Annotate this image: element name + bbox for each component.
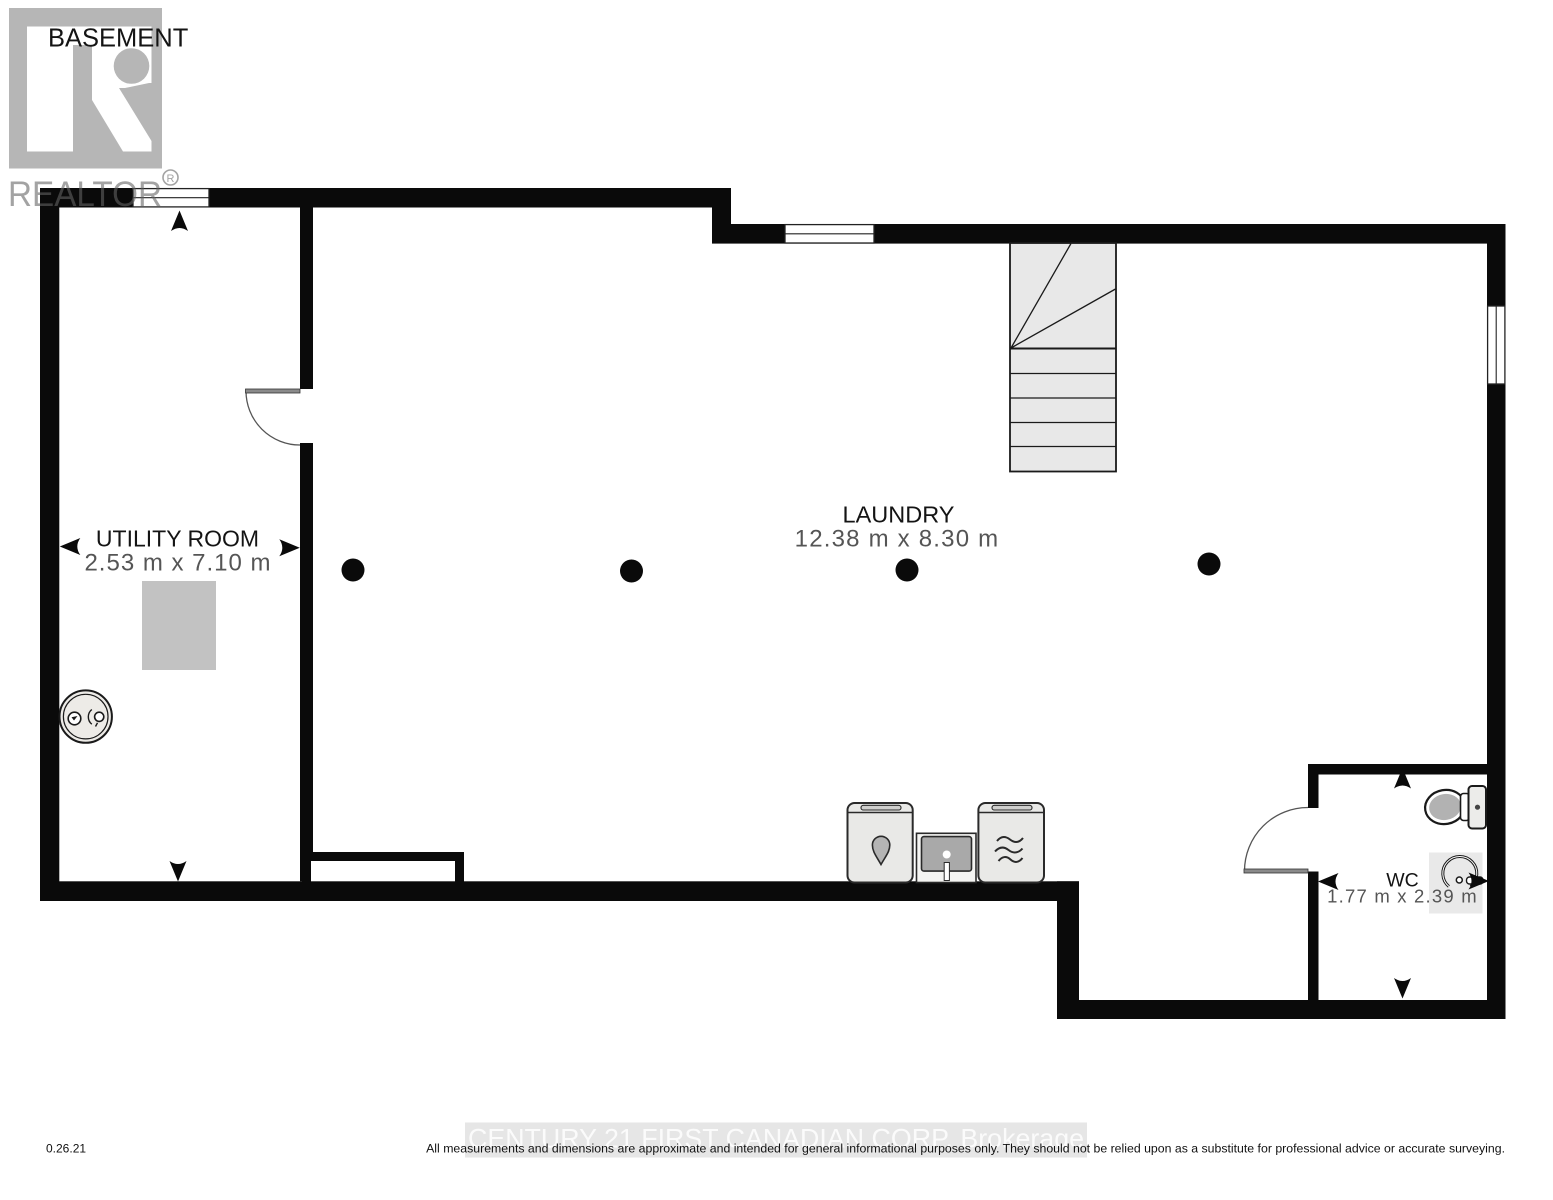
- svg-text:1.77 m x 2.39 m: 1.77 m x 2.39 m: [1327, 886, 1478, 907]
- svg-text:2.53 m x 7.10 m: 2.53 m x 7.10 m: [84, 550, 271, 577]
- svg-text:R: R: [167, 173, 175, 185]
- svg-text:REALTOR: REALTOR: [8, 175, 162, 214]
- svg-text:LAUNDRY: LAUNDRY: [843, 502, 955, 528]
- svg-text:BASEMENT: BASEMENT: [48, 25, 188, 53]
- svg-text:0.26.21: 0.26.21: [46, 1142, 86, 1156]
- svg-text:UTILITY ROOM: UTILITY ROOM: [96, 526, 259, 552]
- svg-text:12.38 m x 8.30 m: 12.38 m x 8.30 m: [795, 526, 1000, 553]
- svg-text:All measurements and dimension: All measurements and dimensions are appr…: [426, 1142, 1505, 1156]
